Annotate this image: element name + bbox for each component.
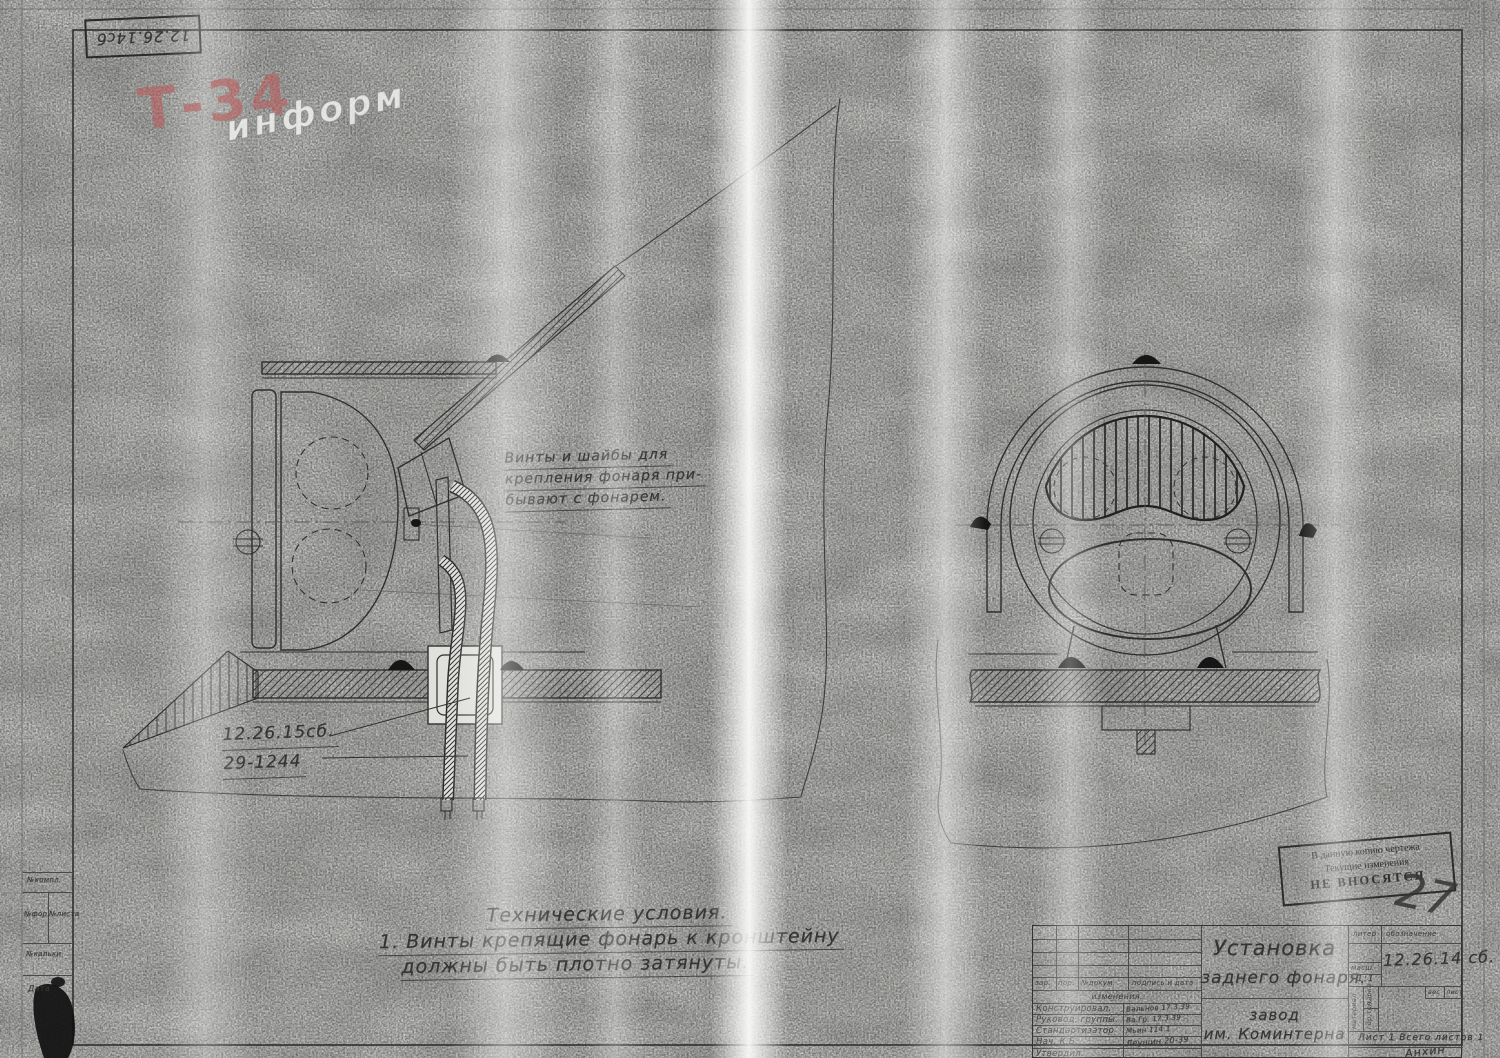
material-label: материал	[1350, 984, 1358, 1029]
drawing-title-line1: Установка	[1201, 936, 1348, 960]
tech-conditions-title: Технические условия.	[485, 901, 731, 929]
margin-row-label: №кальки	[26, 950, 61, 958]
drawing-title-line2: заднего фонаря.	[1201, 968, 1348, 988]
role-label: Нач. К.Б.	[1036, 1037, 1078, 1047]
margin-row-label: №компл.	[27, 876, 61, 884]
rev-caption: изменения.	[1033, 992, 1201, 1001]
role-label: Конструировал.	[1036, 1004, 1112, 1014]
sheets-line: Лист 1 Всего листов 1	[1358, 1033, 1484, 1043]
role-label: Стандартизатор	[1036, 1026, 1114, 1036]
designation-label: обозначение	[1386, 930, 1437, 938]
title-block: зар. пор. №докум. подпись и дата изменен…	[1032, 925, 1462, 1058]
weight-label: вес	[1428, 988, 1440, 996]
mounting-note: Винты и шайбы для крепления фонаря при- …	[503, 444, 707, 512]
approver-signature: Анхин	[1404, 1043, 1446, 1058]
margin-table: №компл. №фор. №листа №кальки Дата	[23, 872, 73, 1058]
role-signature: Мьин 114.1	[1126, 1025, 1171, 1035]
rev-col-label: зар.	[1035, 979, 1051, 987]
liter-label: литер	[1353, 930, 1376, 938]
tech-conditions: Технические условия. 1. Винты крепящие ф…	[377, 900, 844, 981]
margin-row-label: №фор.	[24, 910, 50, 918]
note-line: крепления фонаря при-	[504, 465, 706, 491]
rev-col-label: подпись и дата	[1132, 979, 1194, 987]
margin-row-label: №листа	[49, 910, 79, 918]
watermark: Т-34 информ	[138, 70, 438, 160]
factory-line1: завод	[1201, 1006, 1348, 1024]
corner-code-box: 12.26.14сб	[84, 14, 202, 58]
margin-row-label: Дата	[28, 984, 50, 993]
role-signature: Ва.Гр. 17.3.39	[1126, 1014, 1181, 1025]
role-label: Утвердил.	[1036, 1049, 1084, 1058]
rev-col-label: пор.	[1058, 979, 1075, 987]
designation-value: 12.26.14 сб.	[1383, 947, 1496, 970]
corner-code-text: 12.26.14сб	[95, 25, 190, 47]
scale-value: 1:1	[1357, 974, 1374, 984]
rev-col-label: №докум.	[1081, 979, 1115, 987]
part-label-cable: 29-1244	[222, 748, 306, 780]
role-signature: Вальнов 17.3.39	[1126, 1002, 1190, 1013]
factory-line2: им. Коминтерна	[1201, 1025, 1348, 1043]
part-label-assembly: 12.26.15сб.	[221, 718, 339, 751]
gortop-label: гор.топ.	[1365, 1009, 1373, 1029]
drawing-sheet: 12.26.14сб Винты и шайбы для крепления ф…	[0, 0, 1500, 1058]
scale-label: масш.	[1351, 964, 1375, 972]
tech-conditions-line: должны быть плотно затянуты.	[400, 951, 753, 981]
list-label: лист	[1446, 988, 1463, 996]
part-labels: 12.26.15сб. 29-1244	[221, 718, 340, 780]
role-label: Руковод. группы.	[1036, 1015, 1118, 1025]
note-line: бывают с фонарем.	[504, 487, 670, 512]
